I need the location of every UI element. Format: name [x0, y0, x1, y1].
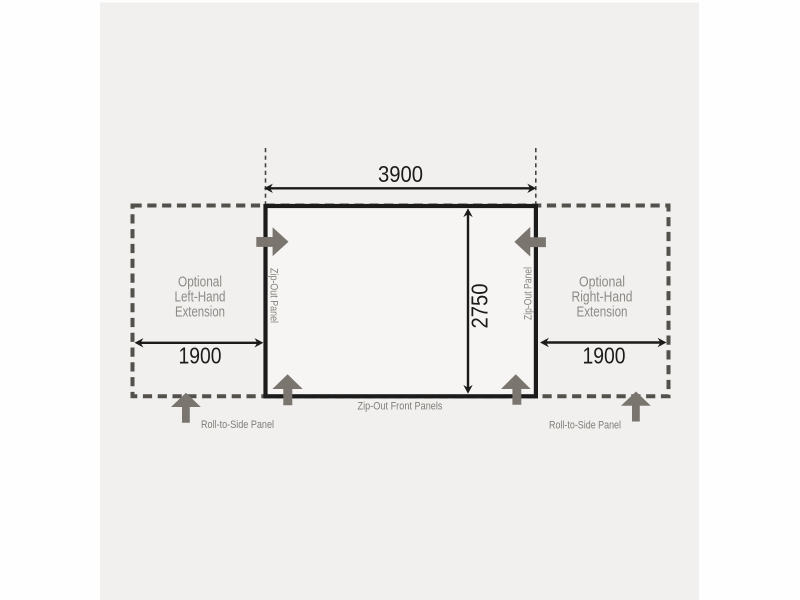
- svg-text:Roll-to-Side Panel: Roll-to-Side Panel: [549, 420, 621, 432]
- svg-text:Extension: Extension: [175, 304, 225, 321]
- svg-text:Extension: Extension: [577, 304, 628, 321]
- svg-text:2750: 2750: [467, 284, 493, 329]
- svg-text:Zip-Out Panel: Zip-Out Panel: [268, 268, 280, 323]
- svg-text:Roll-to-Side Panel: Roll-to-Side Panel: [201, 419, 274, 431]
- svg-text:1900: 1900: [583, 343, 626, 369]
- svg-text:Zip-Out Front Panels: Zip-Out Front Panels: [358, 400, 443, 412]
- svg-text:1900: 1900: [179, 343, 222, 369]
- svg-text:3900: 3900: [378, 161, 423, 187]
- svg-text:Zip-Out Panel: Zip-Out Panel: [523, 267, 535, 320]
